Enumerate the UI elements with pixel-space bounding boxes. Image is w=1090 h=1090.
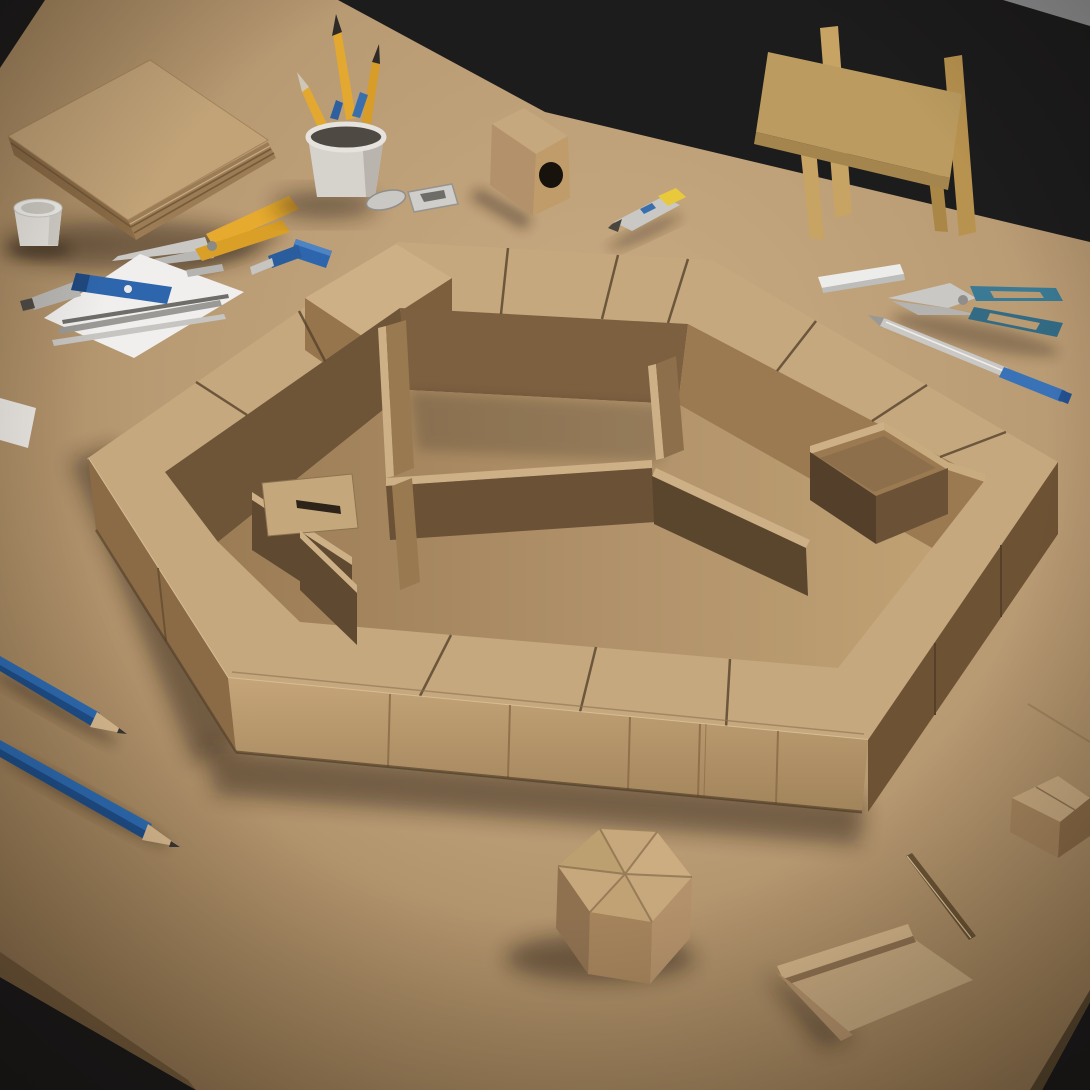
scene-photo: dark studio backdrop tan work table card… xyxy=(0,0,1090,1090)
scene-canvas: dark studio backdrop tan work table card… xyxy=(0,0,1090,1090)
vignette-overlay xyxy=(0,0,1090,1090)
